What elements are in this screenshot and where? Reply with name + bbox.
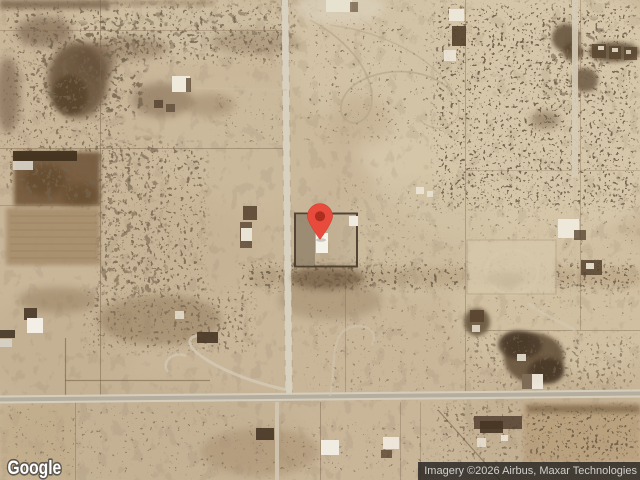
- svg-text:Google: Google: [8, 456, 62, 478]
